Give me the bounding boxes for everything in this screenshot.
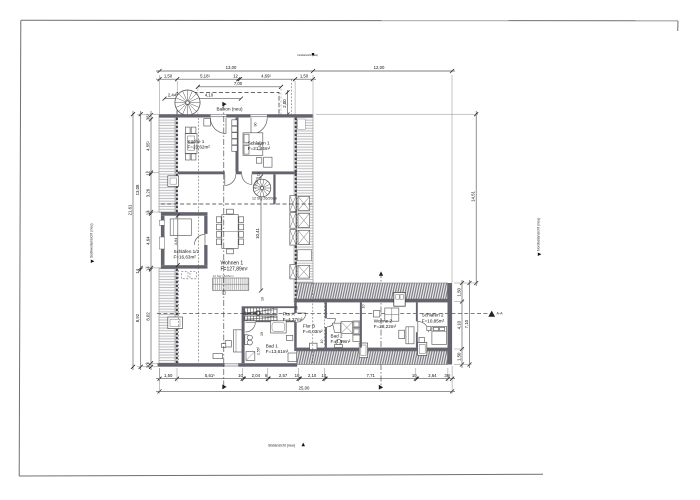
svg-text:19: 19 (260, 332, 264, 336)
svg-text:1,50: 1,50 (456, 352, 461, 361)
svg-text:1,50: 1,50 (456, 288, 461, 297)
svg-text:F=13,61m²: F=13,61m² (266, 349, 289, 354)
svg-text:7,71: 7,71 (367, 373, 376, 378)
svg-text:4,10: 4,10 (456, 320, 461, 329)
svg-text:Flur B: Flur B (303, 324, 315, 329)
svg-text:8,02: 8,02 (146, 312, 151, 321)
svg-text:14: 14 (146, 266, 151, 271)
svg-text:5,61¹: 5,61¹ (205, 373, 215, 378)
svg-text:Nordansicht (neu): Nordansicht (neu) (298, 53, 319, 57)
svg-text:Bad 1: Bad 1 (266, 344, 278, 349)
svg-text:10: 10 (295, 373, 300, 378)
svg-text:2,64: 2,64 (428, 373, 437, 378)
svg-text:F=4,99m²: F=4,99m² (331, 339, 351, 344)
svg-text:4,55¹: 4,55¹ (146, 141, 151, 151)
svg-text:7,10: 7,10 (464, 319, 469, 328)
svg-text:F=16,63m²: F=16,63m² (174, 255, 197, 260)
svg-text:3,26: 3,26 (146, 188, 151, 197)
svg-text:2,55¹: 2,55¹ (257, 346, 261, 355)
svg-text:21,61: 21,61 (128, 204, 133, 215)
svg-text:Wohne 2: Wohne 2 (374, 318, 393, 323)
svg-text:A-A: A-A (497, 312, 504, 316)
svg-text:10,41: 10,41 (255, 228, 260, 239)
svg-text:Nordostansicht (neu): Nordostansicht (neu) (537, 218, 541, 251)
svg-text:Schläfen 1/2: Schläfen 1/2 (174, 249, 200, 254)
svg-text:13,08: 13,08 (135, 184, 140, 195)
svg-text:4,69¹: 4,69¹ (261, 73, 271, 78)
svg-text:30¹: 30¹ (146, 361, 151, 368)
svg-text:8,92: 8,92 (135, 313, 140, 322)
svg-text:10: 10 (321, 373, 326, 378)
svg-text:Südansicht (neu): Südansicht (neu) (268, 444, 295, 448)
svg-text:12: 12 (233, 74, 238, 79)
svg-text:Balkon (neu): Balkon (neu) (217, 107, 244, 112)
svg-text:12 Stg 18/25cm: 12 Stg 18/25cm (213, 274, 235, 278)
svg-text:Flur A: Flur A (283, 312, 296, 317)
svg-text:Bad 2: Bad 2 (331, 334, 343, 339)
svg-text:12: 12 (146, 170, 151, 175)
svg-text:10: 10 (362, 305, 366, 309)
svg-text:Südwestansicht (neu): Südwestansicht (neu) (90, 223, 94, 258)
svg-text:1,50: 1,50 (300, 73, 309, 78)
svg-text:90: 90 (254, 123, 258, 127)
svg-text:1,50: 1,50 (164, 373, 173, 378)
svg-text:2,57: 2,57 (279, 373, 288, 378)
svg-text:10: 10 (261, 297, 265, 301)
svg-text:4,64: 4,64 (146, 236, 151, 245)
svg-text:2,44: 2,44 (168, 93, 177, 98)
svg-text:12 Stg 26/20cm: 12 Stg 26/20cm (252, 197, 277, 201)
svg-text:14: 14 (135, 268, 140, 273)
svg-text:10: 10 (412, 373, 417, 378)
svg-text:4,10: 4,10 (205, 93, 214, 98)
svg-text:2,04: 2,04 (252, 373, 261, 378)
svg-text:F=23,62m²: F=23,62m² (188, 145, 211, 150)
svg-text:12,00: 12,00 (374, 65, 385, 70)
svg-text:4,64: 4,64 (173, 237, 178, 246)
svg-text:2,10: 2,10 (308, 373, 317, 378)
svg-text:Küche 1: Küche 1 (188, 139, 205, 144)
svg-text:10: 10 (320, 340, 324, 344)
svg-text:10: 10 (295, 306, 299, 310)
svg-text:5,18¹: 5,18¹ (200, 73, 210, 78)
svg-text:Schlafen 2: Schlafen 2 (422, 313, 444, 318)
svg-text:14: 14 (146, 210, 151, 215)
svg-text:1,50: 1,50 (164, 73, 173, 78)
svg-text:F=127,89m²: F=127,89m² (221, 267, 248, 273)
svg-text:F=28,22m²: F=28,22m² (374, 324, 397, 329)
svg-text:7,00: 7,00 (234, 81, 243, 86)
svg-text:13,00: 13,00 (226, 65, 237, 70)
svg-text:2,00: 2,00 (282, 99, 287, 108)
svg-text:14,51: 14,51 (471, 191, 476, 202)
svg-text:36¹: 36¹ (146, 114, 151, 121)
svg-text:25,00: 25,00 (299, 386, 310, 391)
svg-text:F=10,85m²: F=10,85m² (422, 318, 445, 323)
svg-text:4,52: 4,52 (258, 144, 262, 151)
